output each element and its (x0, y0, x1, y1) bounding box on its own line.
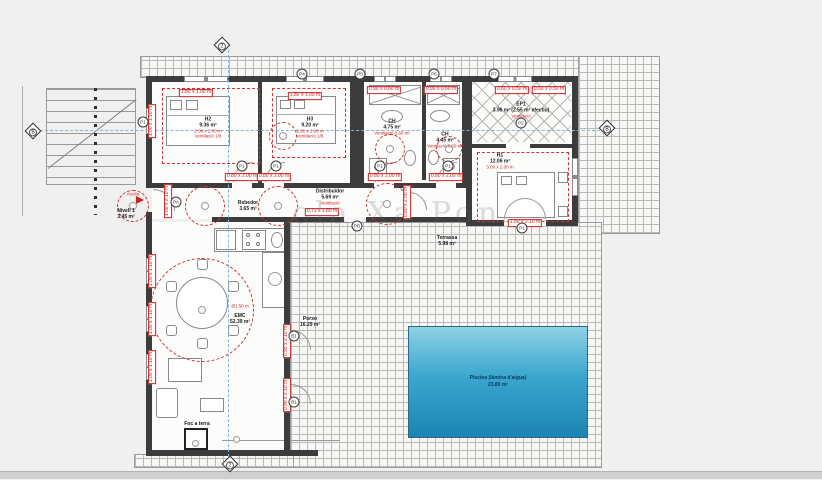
fixture-symbol (274, 202, 282, 210)
dimension-label: 0.80 x 2.00 m (403, 185, 411, 219)
fireplace-flue (192, 440, 199, 447)
door-opening-ch2 (436, 183, 456, 188)
point-marker-pa: PA (171, 197, 182, 208)
bottom-border-band (0, 471, 822, 479)
wall-bath-ep1 (462, 81, 468, 183)
label-line: 5.98 m² (437, 241, 457, 247)
dimension-label: 1.00 x 1.10 m (148, 302, 156, 336)
room-label-rebedor: Rebedor3.65 m² (238, 200, 258, 212)
stair-handrail (94, 88, 97, 215)
dimension-label: 1.00 x 1.10 m (148, 254, 156, 288)
label-line: Foc a terra (184, 421, 210, 427)
dimension-label: 0.71 x 1.80 m (305, 208, 339, 216)
axis-marker-label: B (601, 123, 613, 135)
label-red-line: Ventilació 0.60 m² (374, 130, 410, 135)
fixture-symbol (201, 202, 209, 210)
toilet (404, 150, 416, 166)
dimension-label: 1.00 x 1.10 m (148, 104, 156, 138)
armchair (156, 388, 178, 418)
point-marker-p1: P1 (271, 161, 282, 172)
room-label-foc-a-terra: Foc a terra (184, 421, 210, 427)
swimming-pool: Piscina (làmina d'aigua) 23.80 m² (408, 326, 588, 438)
rail-end (233, 436, 240, 443)
dimension-label: 1.80 x 1.00 m (288, 92, 322, 100)
fixture-symbol (386, 145, 394, 153)
wall-bottom (146, 450, 318, 456)
dimension-label: 0.60 x 0.50 m (532, 86, 566, 94)
point-marker-p1: P1 (375, 161, 386, 172)
point-marker-p1: P1 (517, 223, 528, 234)
label-red-line: Accés (127, 191, 139, 196)
fridge (216, 230, 236, 250)
fixture-symbol (383, 200, 391, 208)
point-marker-p4: P4 (297, 69, 308, 80)
room-label-distribuidor: Distribuïdor5.69 m²Ventilació (316, 188, 344, 205)
room-label-ch1: CH4.75 m²Ventilació 0.60 m² (374, 118, 410, 135)
room-label-nivell: Nivell 13.45 m² (117, 208, 135, 220)
room-label-h1: H112.06 m²3.00 x 2.00 m (486, 152, 513, 169)
fixture-symbol (198, 306, 206, 314)
label-red-line: Ventilació 1/8 (296, 134, 323, 139)
axis-marker-b: B (25, 123, 42, 140)
point-marker-p1: P1 (237, 161, 248, 172)
axis-marker-2: 2 (214, 37, 231, 54)
terrace-tiles-right-block (578, 56, 660, 234)
wall-right-block-right (572, 76, 578, 226)
boundary-line (22, 86, 23, 216)
room-label-terrassa: Terrassa5.98 m² (437, 235, 457, 247)
exterior-staircase (46, 88, 136, 185)
window-h2-top (184, 76, 228, 82)
floor-plan-canvas: Piscina (làmina d'aigua) 23.80 m² (0, 0, 822, 480)
point-marker-p6: P6 (429, 69, 440, 80)
window-h1-right (572, 158, 578, 196)
label-line: 3.65 m² (238, 206, 258, 212)
label-line: 16.29 m² (300, 322, 320, 328)
pool-label: Piscina (làmina d'aigua) 23.80 m² (409, 375, 587, 388)
burner (246, 242, 250, 246)
fixture-symbol (279, 132, 287, 140)
label-red-line: Ø1.50 m (231, 303, 248, 308)
point-marker-p1: P1 (443, 161, 454, 172)
room-label-h2: H29.36 m²2.00 x 2.00 mVentilació 1/8 (194, 117, 221, 140)
dimension-label: 0.90 x 0.60 m (424, 86, 458, 94)
room-label-acces: Accés (127, 191, 139, 196)
axis-marker-label: 2 (224, 459, 236, 471)
oven-symbol (268, 272, 282, 286)
dimension-label: 1.00 x 1.10 m (148, 350, 156, 384)
label-red-line: Ventilació (316, 200, 344, 205)
burner (256, 233, 260, 237)
dimension-label: 1.80 x 1.00 m (179, 89, 213, 97)
room-label-ch2: CH4.45 m²Ventilació 0.60 m² (427, 131, 463, 148)
dimension-label: 0.80 x 2.00 m (257, 173, 291, 181)
dimension-label: 0.90 x 0.60 m (367, 86, 401, 94)
room-label-emc-circle: Ø1.50 m (231, 303, 248, 308)
burner (256, 242, 260, 246)
dimension-label: 0.90 x 2.10 m (283, 378, 291, 412)
label-line: 3.45 m² (117, 214, 135, 220)
point-marker-p1: P1 (138, 117, 149, 128)
dimension-label: 0.80 x 2.00 m (429, 173, 463, 181)
wall-h3-bath (350, 81, 364, 183)
burner (246, 233, 250, 237)
room-label-emc: EMC52.39 m² (230, 313, 250, 325)
room-label-h3: H39.20 m²2.00 x 2.00 mVentilació 1/8 (296, 117, 323, 140)
point-marker-b1: B1 (289, 397, 300, 408)
door-opening-h2 (232, 183, 252, 188)
point-marker-p7: P7 (489, 69, 500, 80)
point-marker-p2: P2 (516, 118, 527, 129)
label-line: 52.39 m² (230, 319, 250, 325)
label-red-line: Ventilació 0.60 m² (427, 143, 463, 148)
room-label-porxo: Porxo16.29 m² (300, 316, 320, 328)
point-marker-pb: PB (352, 221, 363, 232)
axis-marker-label: B (27, 126, 39, 138)
dimension-label: 0.90 x 2.10 m (283, 324, 291, 358)
washbasin (430, 110, 450, 122)
dimension-label: 0.80 x 2.00 m (368, 173, 402, 181)
terrace-tiles-bottom-band (134, 454, 294, 468)
window-ep1-top (498, 76, 532, 82)
window-ch1-top (374, 76, 396, 82)
point-marker-b1: B1 (289, 331, 300, 342)
room-label-ep1: EP13.96 m² (2.55 m² efectiu)Ventilació (493, 101, 550, 118)
kitchen-sink (271, 232, 283, 248)
dimension-label: 0.60 x 0.50 m (495, 86, 529, 94)
coffee-table (200, 398, 224, 412)
door-opening-ep1 (506, 144, 530, 148)
pool-area: 23.80 m² (409, 382, 587, 389)
label-red-line: 3.00 x 2.00 m (486, 164, 513, 169)
label-red-line: Ventilació 1/8 (194, 134, 221, 139)
dimension-label: 0.80 x 2.00 m (225, 173, 259, 181)
point-marker-p5: P5 (355, 69, 366, 80)
axis-marker-label: 2 (216, 40, 228, 52)
